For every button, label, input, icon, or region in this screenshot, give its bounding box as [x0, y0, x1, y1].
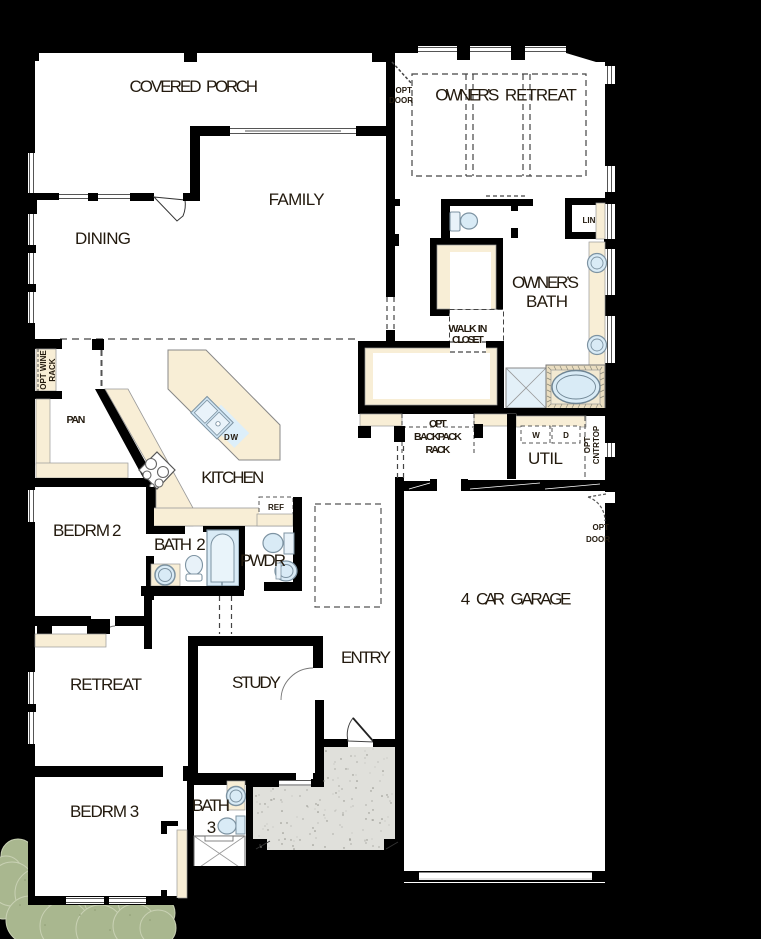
svg-text:STUDY: STUDY	[232, 673, 281, 692]
svg-text:CNTRTOP: CNTRTOP	[592, 425, 601, 464]
svg-text:ENTRY: ENTRY	[341, 648, 391, 667]
svg-text:OPT WINE: OPT WINE	[39, 350, 48, 390]
svg-text:W: W	[532, 431, 540, 440]
svg-text:OWNER’S: OWNER’S	[512, 273, 579, 292]
svg-text:RACK: RACK	[48, 358, 57, 381]
svg-text:BEDRM2: BEDRM2	[53, 521, 121, 540]
svg-text:D: D	[563, 431, 569, 440]
svg-text:BATH: BATH	[526, 292, 568, 311]
svg-text:BATH: BATH	[192, 796, 230, 815]
svg-text:DOOR: DOOR	[586, 535, 610, 544]
svg-text:4CARGARAGE: 4CARGARAGE	[461, 590, 572, 609]
svg-text:DW: DW	[224, 433, 238, 442]
svg-text:BEDRM3: BEDRM3	[70, 802, 139, 821]
svg-text:BATH2: BATH2	[154, 535, 206, 554]
svg-text:OPT: OPT	[429, 418, 447, 430]
svg-text:OPT: OPT	[593, 523, 610, 532]
svg-text:UTIL: UTIL	[528, 449, 563, 468]
svg-text:3: 3	[207, 818, 216, 837]
svg-text:COVEREDPORCH: COVEREDPORCH	[130, 77, 259, 96]
svg-text:RETREAT: RETREAT	[70, 675, 142, 694]
svg-text:OPT: OPT	[583, 437, 592, 454]
svg-text:OWNER’SRETREAT: OWNER’SRETREAT	[435, 86, 577, 105]
svg-text:FAMILY: FAMILY	[269, 190, 325, 209]
svg-text:RACK: RACK	[426, 444, 451, 456]
svg-text:DINING: DINING	[75, 229, 131, 248]
svg-text:LIN: LIN	[583, 216, 596, 225]
svg-text:PWDR: PWDR	[240, 551, 286, 570]
svg-text:BACKPACK: BACKPACK	[414, 431, 462, 443]
svg-text:REF: REF	[268, 503, 284, 512]
svg-text:PAN: PAN	[67, 414, 86, 426]
svg-text:CLOSET: CLOSET	[452, 334, 484, 346]
svg-text:KITCHEN: KITCHEN	[201, 468, 264, 487]
svg-text:OPT: OPT	[396, 86, 413, 95]
svg-text:DOOR: DOOR	[389, 96, 413, 105]
